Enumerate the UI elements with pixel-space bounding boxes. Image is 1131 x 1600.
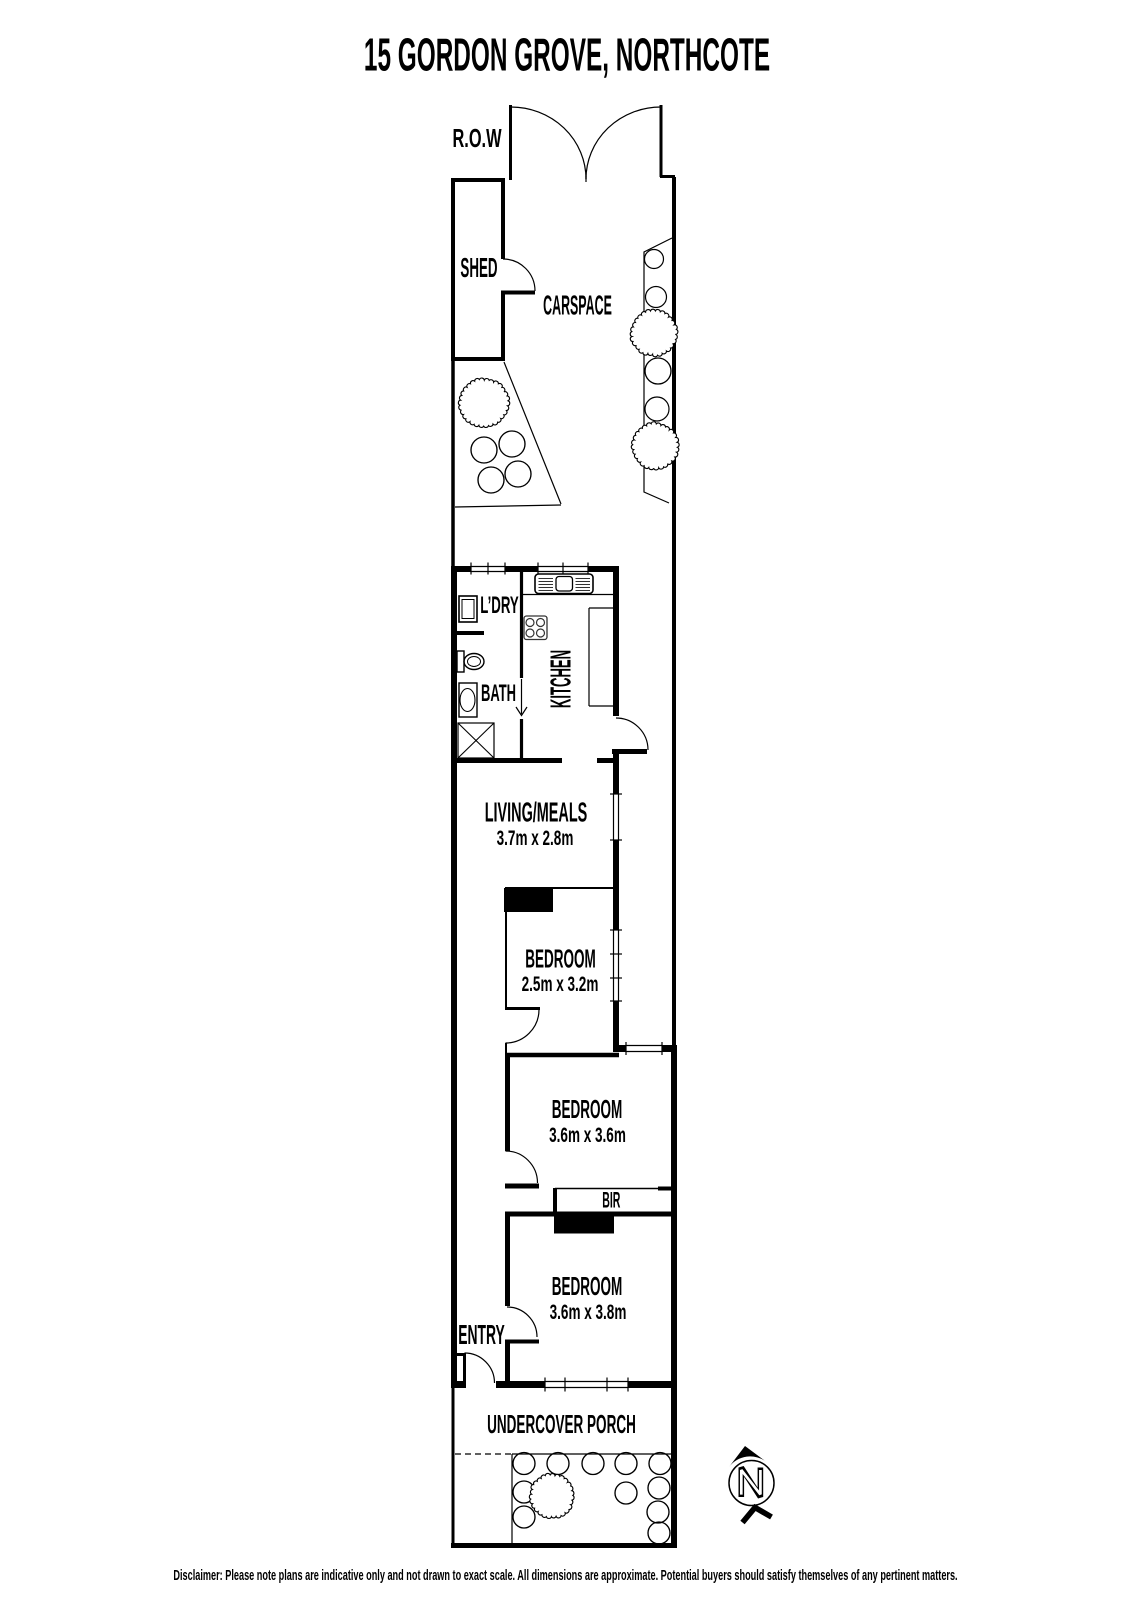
- svg-text:SHED: SHED: [460, 251, 497, 283]
- svg-text:BEDROOM: BEDROOM: [525, 945, 596, 974]
- svg-text:Disclaimer: Please note plans: Disclaimer: Please note plans are indica…: [173, 1567, 957, 1584]
- svg-text:2.5m x 3.2m: 2.5m x 3.2m: [522, 972, 599, 996]
- svg-text:L’DRY: L’DRY: [480, 592, 518, 619]
- svg-text:15 GORDON GROVE, NORTHCOTE: 15 GORDON GROVE, NORTHCOTE: [364, 29, 770, 80]
- svg-text:3.7m x 2.8m: 3.7m x 2.8m: [497, 826, 574, 850]
- svg-text:BEDROOM: BEDROOM: [552, 1095, 623, 1124]
- svg-text:KITCHEN: KITCHEN: [545, 650, 577, 708]
- svg-text:BATH: BATH: [481, 680, 516, 707]
- svg-text:ENTRY: ENTRY: [458, 1319, 505, 1351]
- svg-text:UNDERCOVER PORCH: UNDERCOVER PORCH: [487, 1410, 636, 1439]
- svg-text:R.O.W: R.O.W: [452, 123, 501, 153]
- svg-text:CARSPACE: CARSPACE: [543, 290, 612, 321]
- svg-text:BEDROOM: BEDROOM: [552, 1272, 623, 1301]
- svg-text:3.6m x 3.6m: 3.6m x 3.6m: [549, 1123, 626, 1147]
- svg-text:3.6m x 3.8m: 3.6m x 3.8m: [550, 1300, 627, 1324]
- svg-text:BIR: BIR: [602, 1187, 621, 1212]
- svg-text:LIVING/MEALS: LIVING/MEALS: [485, 796, 588, 827]
